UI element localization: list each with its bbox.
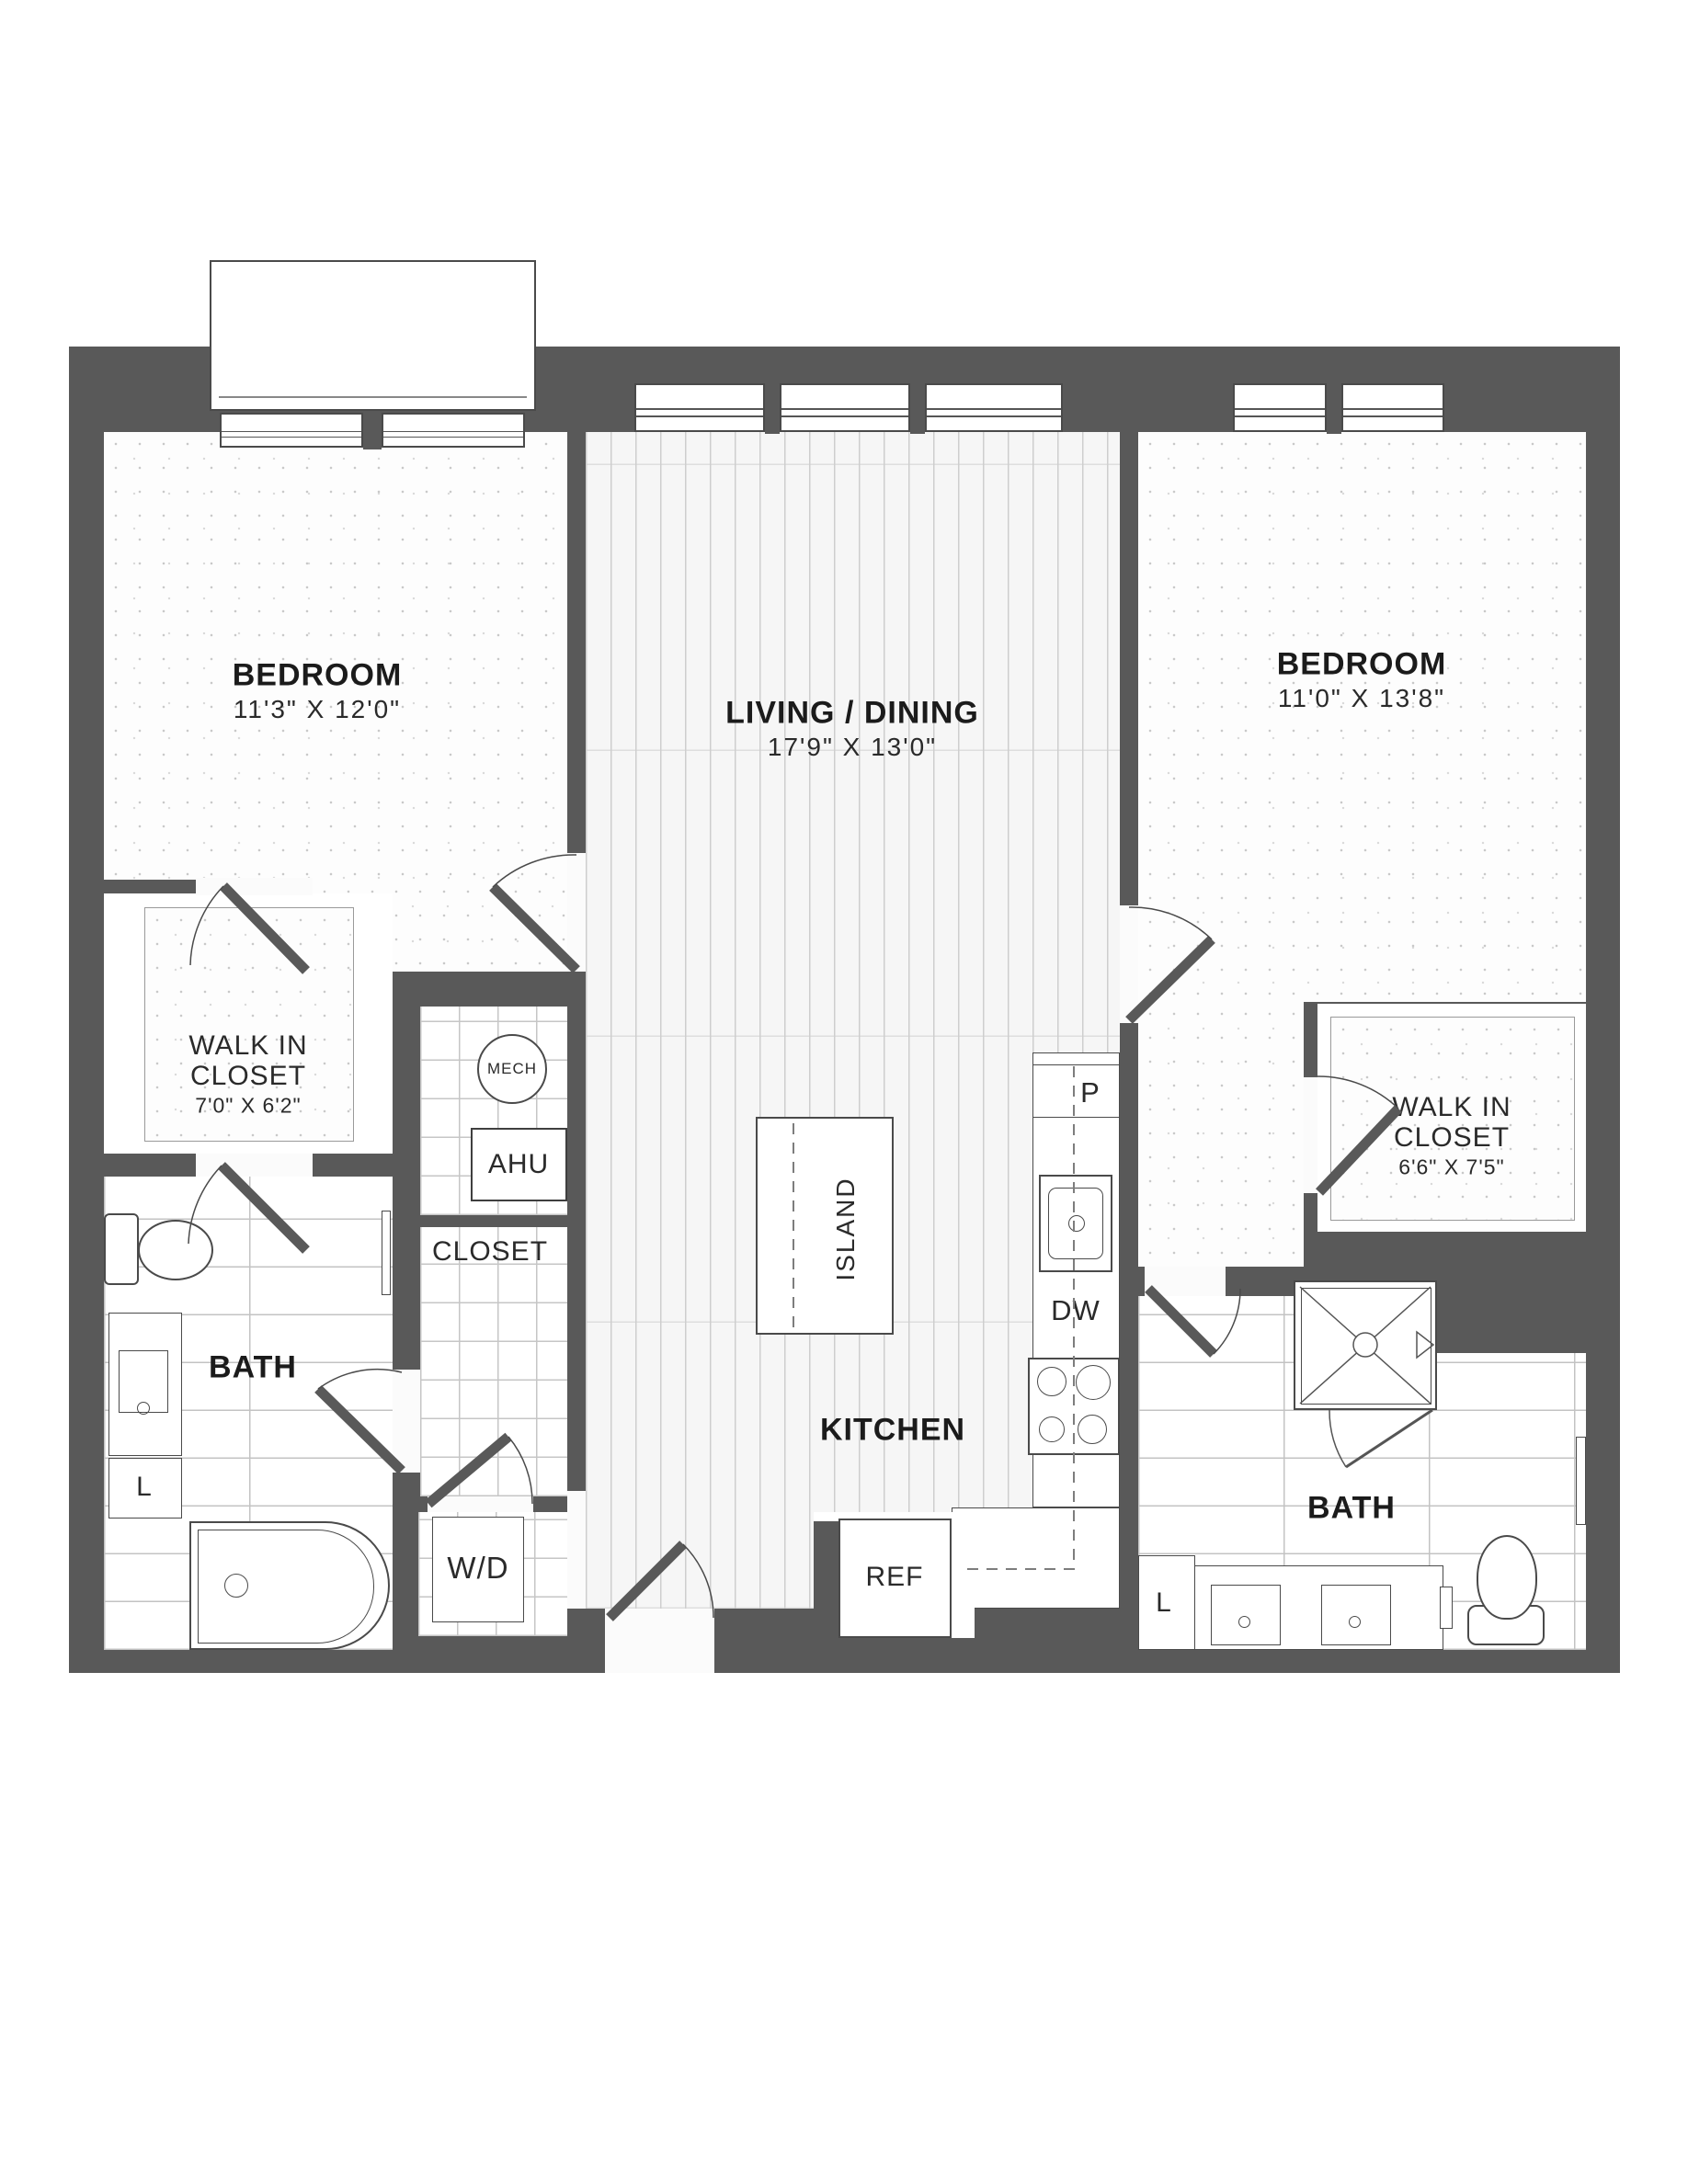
label-bath-right: BATH <box>1307 1491 1396 1527</box>
window-living-1 <box>634 383 765 432</box>
opening-wic-left-bottom <box>196 1154 313 1177</box>
bay-sill-line <box>219 396 527 398</box>
window-mullion <box>1327 381 1341 434</box>
opening-bath-left <box>393 1370 420 1473</box>
dims-living-dining: 17'9" X 13'0" <box>768 733 937 762</box>
faucet-right <box>1440 1587 1453 1629</box>
label-wic-left-1: WALK IN <box>188 1030 307 1062</box>
label-wic-right-2: CLOSET <box>1394 1122 1510 1154</box>
dims-wic-right: 6'6" X 7'5" <box>1398 1155 1504 1180</box>
label-bath-left: BATH <box>209 1350 297 1386</box>
shower <box>1294 1280 1437 1410</box>
wall-beside-shower <box>1437 1296 1586 1353</box>
dims-wic-left: 7'0" X 6'2" <box>195 1094 301 1119</box>
label-ref: REF <box>866 1562 924 1593</box>
kitchen-range <box>1028 1358 1120 1455</box>
label-wic-right-1: WALK IN <box>1392 1092 1511 1123</box>
window-bedroom-right-1 <box>1233 383 1327 432</box>
opening-wic-right <box>1304 1077 1317 1193</box>
label-bedroom-left: BEDROOM <box>233 658 403 694</box>
dims-bedroom-right: 11'0" X 13'8" <box>1278 684 1445 713</box>
label-wic-left-2: CLOSET <box>190 1061 306 1092</box>
window-bay-2 <box>382 413 525 448</box>
window-mullion <box>910 381 925 434</box>
toilet-left-tank <box>104 1213 139 1285</box>
label-pantry: P <box>1080 1076 1101 1109</box>
opening-bedroom-right <box>1120 905 1138 1023</box>
window-mullion <box>765 381 780 434</box>
label-living-dining: LIVING / DINING <box>725 696 979 732</box>
toilet-left-bowl <box>138 1220 213 1280</box>
window-living-2 <box>780 383 910 432</box>
label-closet: CLOSET <box>432 1236 548 1268</box>
ref-niche-wall <box>814 1521 838 1638</box>
opening-bath-right <box>1145 1267 1226 1296</box>
label-island: ISLAND <box>831 1177 861 1280</box>
towel-bar-right <box>1576 1437 1586 1525</box>
label-linen-left: L <box>136 1472 153 1503</box>
opening-wic-left-top <box>196 878 313 895</box>
label-mech: MECH <box>487 1060 537 1078</box>
window-mullion <box>363 411 382 449</box>
toilet-right-bowl <box>1477 1535 1537 1620</box>
pantry-cabinet <box>1032 1064 1120 1118</box>
towel-bar-left <box>382 1211 391 1295</box>
kitchen-sink <box>1039 1175 1112 1272</box>
label-wd: W/D <box>447 1551 508 1586</box>
floor-bedroom-left <box>104 432 567 880</box>
opening-wd <box>428 1496 533 1512</box>
bathtub <box>189 1521 390 1650</box>
opening-entry-door <box>605 1609 714 1673</box>
floorplan-canvas: BEDROOM 11'3" X 12'0" LIVING / DINING 17… <box>0 0 1688 2184</box>
opening-hall-entry <box>567 1491 586 1609</box>
window-bay-1 <box>220 413 363 448</box>
opening-bedroom-left <box>567 853 586 972</box>
dims-bedroom-left: 11'3" X 12'0" <box>234 695 401 724</box>
floor-bedroom-right <box>1138 432 1586 1002</box>
label-linen-right: L <box>1156 1587 1172 1619</box>
floor-bedroom-right-ext <box>1138 1002 1304 1267</box>
label-kitchen: KITCHEN <box>820 1413 965 1449</box>
window-living-3 <box>925 383 1063 432</box>
window-bedroom-right-2 <box>1341 383 1444 432</box>
vanity-right <box>1184 1565 1443 1650</box>
bay-window <box>210 260 536 411</box>
kitchen-island <box>756 1117 894 1335</box>
label-bedroom-right: BEDROOM <box>1277 647 1447 683</box>
kitchen-counter-return <box>952 1507 1120 1609</box>
label-ahu: AHU <box>488 1149 549 1180</box>
vanity-left <box>108 1313 182 1456</box>
label-dw: DW <box>1051 1294 1101 1327</box>
